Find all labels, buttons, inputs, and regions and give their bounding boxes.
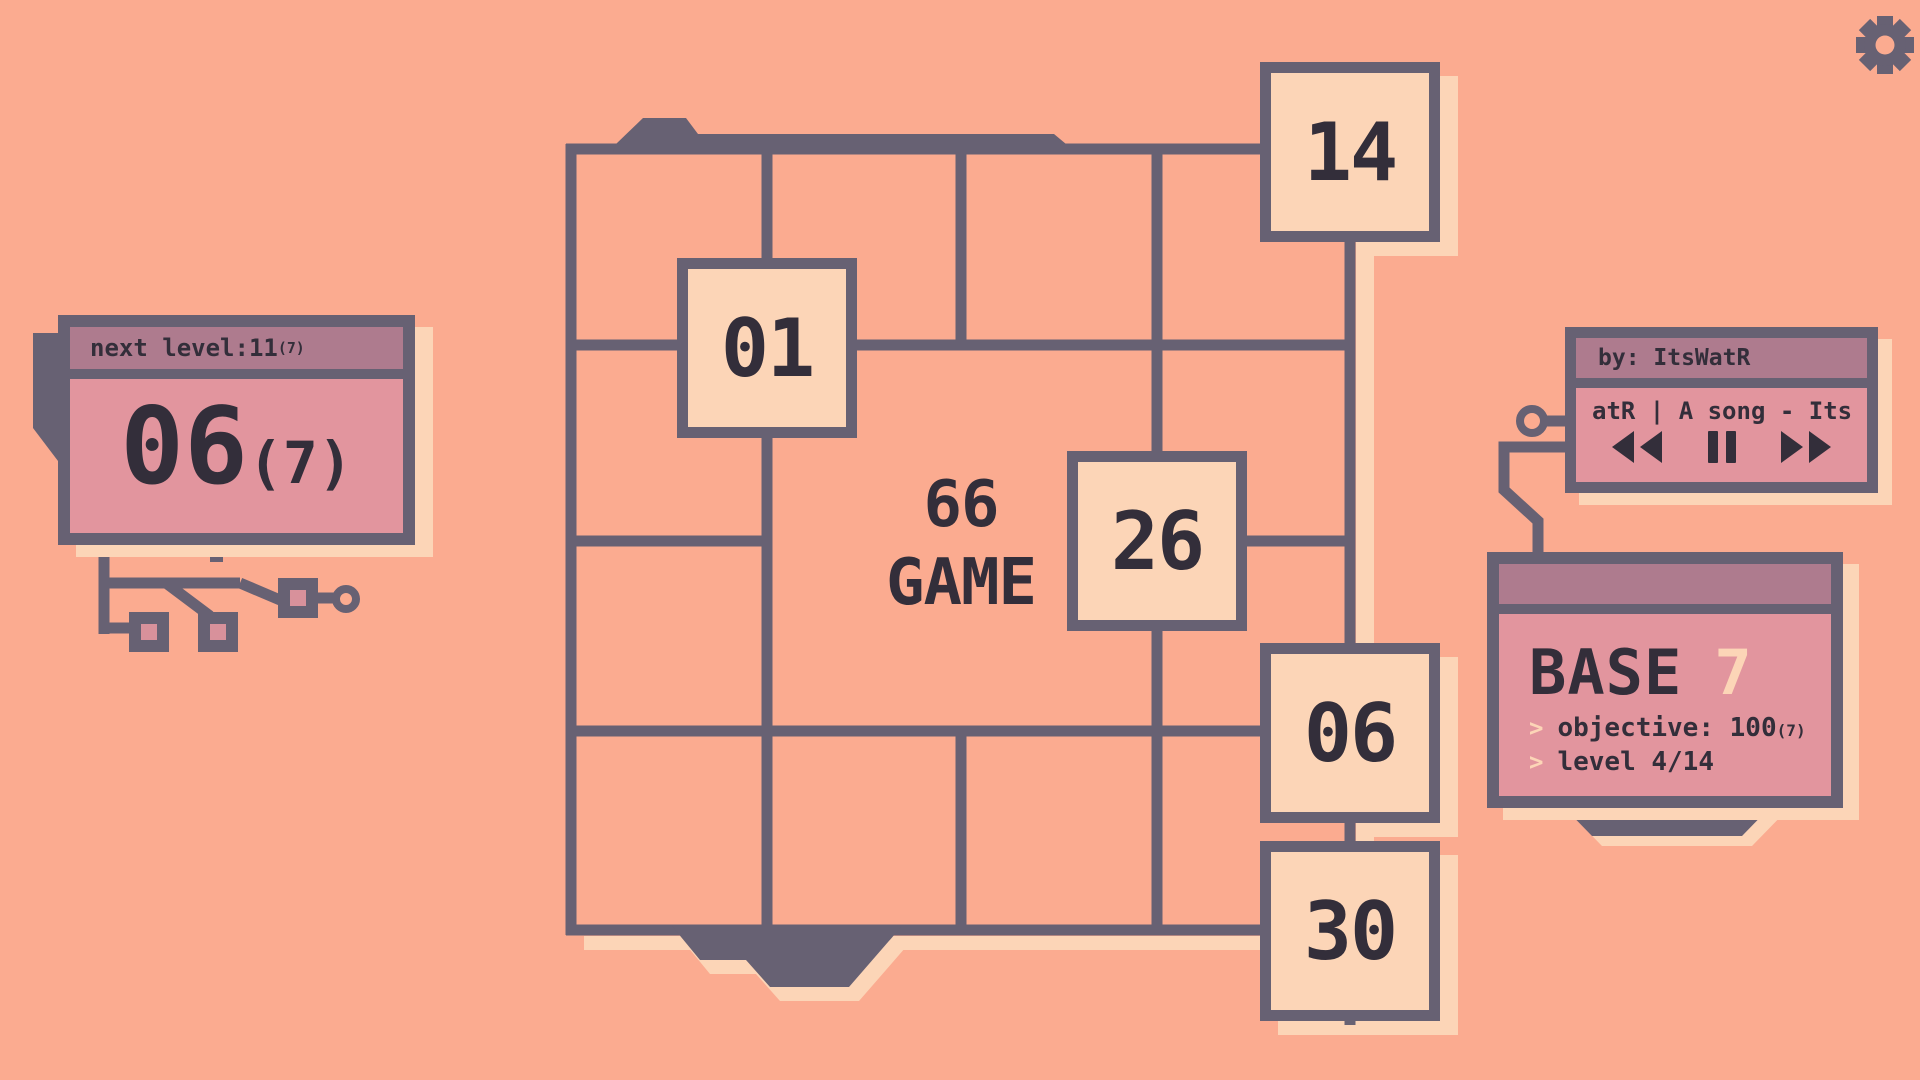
base-panel-body: BASE 7 > objective: 100(7) > level 4/14 bbox=[1499, 614, 1831, 777]
author-label: by: ItsWatR bbox=[1598, 345, 1750, 371]
tile-06[interactable]: 06 bbox=[1260, 643, 1440, 823]
base-panel: BASE 7 > objective: 100(7) > level 4/14 bbox=[1487, 552, 1843, 808]
panel-divider bbox=[1499, 604, 1831, 614]
tile-label: 06 bbox=[1304, 687, 1396, 780]
connector-trace bbox=[1504, 409, 1568, 560]
next-level-panel: next level: 11(7) 06 (7) bbox=[58, 315, 415, 545]
next-level-base: (7) bbox=[278, 339, 305, 357]
base-panel-header bbox=[1499, 564, 1831, 604]
pause-button[interactable] bbox=[1708, 431, 1736, 463]
tile-label: 30 bbox=[1304, 885, 1396, 978]
base-title: BASE bbox=[1529, 636, 1682, 709]
settings-button[interactable] bbox=[1854, 14, 1916, 76]
tile-01[interactable]: 01 bbox=[677, 258, 857, 438]
panel-side-notch bbox=[33, 333, 58, 461]
objective-line: > objective: 100(7) bbox=[1529, 713, 1831, 743]
game-stage: 66 GAME 14 01 26 06 30 next level: 11(7)… bbox=[0, 0, 1920, 1080]
prompt-chevron: > bbox=[1529, 748, 1543, 776]
level-label: level 4/14 bbox=[1557, 747, 1714, 777]
rewind-icon bbox=[1612, 431, 1662, 463]
rewind-button[interactable] bbox=[1612, 431, 1662, 463]
circuit-decoration bbox=[104, 538, 356, 652]
tile-26[interactable]: 26 bbox=[1067, 451, 1247, 631]
song-title-marquee: atR | A song - Its bbox=[1576, 388, 1867, 425]
fast-forward-icon bbox=[1781, 431, 1831, 463]
current-count: 06 bbox=[120, 387, 248, 507]
next-level-header: next level: 11(7) bbox=[70, 327, 403, 369]
tile-label: 01 bbox=[721, 302, 813, 395]
tile-30[interactable]: 30 bbox=[1260, 841, 1440, 1021]
gear-icon bbox=[1854, 14, 1916, 76]
music-player-header: by: ItsWatR bbox=[1576, 338, 1867, 378]
level-line: > level 4/14 bbox=[1529, 747, 1831, 777]
prompt-chevron: > bbox=[1529, 714, 1543, 742]
grid-top-bump bbox=[613, 118, 1066, 152]
current-count-base: (7) bbox=[248, 429, 353, 497]
objective-label: objective: 100 bbox=[1557, 713, 1776, 743]
music-controls bbox=[1576, 425, 1867, 463]
next-level-value: 11 bbox=[249, 334, 278, 362]
fast-forward-button[interactable] bbox=[1781, 431, 1831, 463]
objective-base: (7) bbox=[1777, 721, 1806, 740]
next-level-label: next level: bbox=[90, 334, 249, 362]
panel-divider bbox=[1576, 378, 1867, 388]
panel-divider bbox=[70, 369, 403, 379]
tile-label: 26 bbox=[1111, 495, 1203, 588]
tile-14[interactable]: 14 bbox=[1260, 62, 1440, 242]
music-player-panel: by: ItsWatR atR | A song - Its bbox=[1565, 327, 1878, 493]
pause-icon bbox=[1708, 431, 1736, 463]
tile-label: 14 bbox=[1304, 106, 1396, 199]
next-level-body: 06 (7) bbox=[70, 379, 403, 541]
base-number: 7 bbox=[1714, 636, 1751, 709]
